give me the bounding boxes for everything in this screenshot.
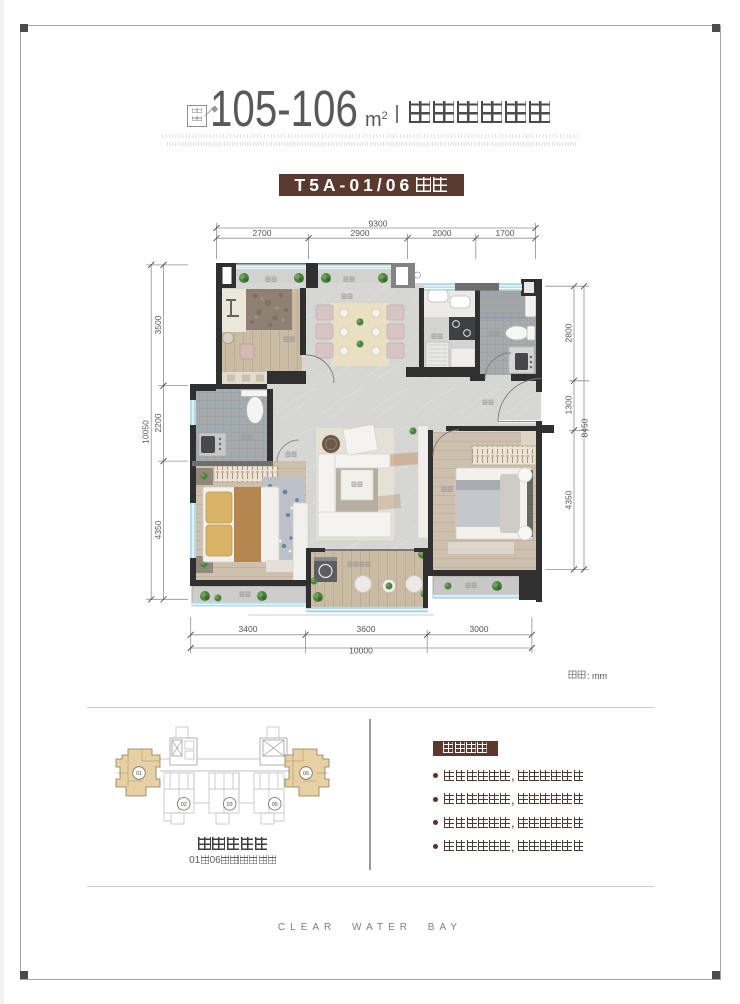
svg-text:10050: 10050 <box>141 420 151 444</box>
svg-text:03: 03 <box>227 802 233 808</box>
svg-text:2900: 2900 <box>351 228 370 238</box>
svg-text:2800: 2800 <box>564 323 574 342</box>
svg-text:10000: 10000 <box>349 646 373 656</box>
svg-text:2000: 2000 <box>433 228 452 238</box>
svg-text:1300: 1300 <box>564 395 574 414</box>
svg-text:2700: 2700 <box>253 228 272 238</box>
svg-text:3400: 3400 <box>239 624 258 634</box>
svg-text:3500: 3500 <box>153 315 163 334</box>
svg-text:3000: 3000 <box>470 624 489 634</box>
svg-text:: mm: : mm <box>587 671 607 681</box>
svg-text:06: 06 <box>303 771 309 777</box>
svg-text:3600: 3600 <box>357 624 376 634</box>
svg-text:1700: 1700 <box>496 228 515 238</box>
svg-text:9300: 9300 <box>369 219 388 229</box>
svg-text:02: 02 <box>181 802 187 808</box>
svg-text:4350: 4350 <box>153 520 163 539</box>
svg-text:8450: 8450 <box>580 418 590 437</box>
svg-text:2200: 2200 <box>153 413 163 432</box>
svg-text:4350: 4350 <box>564 490 574 509</box>
svg-text:05: 05 <box>272 802 278 808</box>
svg-text:01: 01 <box>136 771 142 777</box>
